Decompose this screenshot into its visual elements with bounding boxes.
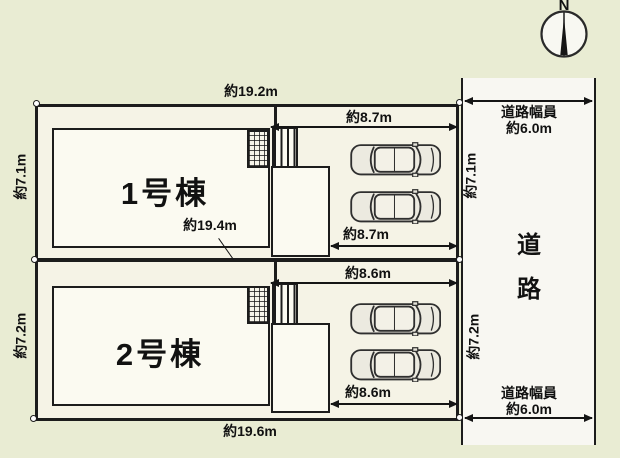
- car-icon: [350, 189, 441, 224]
- dim-label-depth-1-left: 約7.1m: [13, 149, 28, 205]
- arrow-left-icon: [270, 279, 279, 287]
- dim-line-parking-1-top: [271, 126, 457, 128]
- car-icon: [350, 347, 441, 382]
- arrow-right-icon: [449, 400, 458, 408]
- corner-marker: [33, 100, 40, 107]
- arrow-right-icon: [449, 242, 458, 250]
- dim-label-middle-width: 約19.4m: [140, 218, 280, 233]
- dim-label-parking-1-top: 約8.7m: [299, 110, 439, 125]
- dim-label-parking-2-bottom: 約8.6m: [298, 385, 438, 400]
- road-width-caption-line1: 道路幅員: [464, 385, 594, 401]
- road-width-caption-line2: 約6.0m: [464, 120, 594, 136]
- road-width-caption-top: 道路幅員 約6.0m: [464, 104, 594, 136]
- car-icon: [350, 301, 441, 336]
- road-width-caption-line1: 道路幅員: [464, 104, 594, 120]
- dim-label-bottom-width: 約19.6m: [180, 424, 320, 439]
- entrance-stairs-2-icon: [272, 283, 298, 325]
- dim-line-parking-2-bottom: [331, 403, 457, 405]
- corner-marker: [31, 256, 38, 263]
- dim-label-parking-1-bottom: 約8.7m: [296, 227, 436, 242]
- dim-line-road-width-top: [465, 100, 592, 102]
- arrow-right-icon: [449, 279, 458, 287]
- arrow-left-icon: [330, 242, 339, 250]
- site-plan: 1号棟 2号棟 約19.2m 約19.4m 約19.6m 約8.7m 約8.7m…: [0, 0, 620, 458]
- dim-line-parking-2-top: [271, 282, 457, 284]
- corner-marker: [30, 415, 37, 422]
- arrow-left-icon: [270, 123, 279, 131]
- arrow-left-icon: [330, 400, 339, 408]
- entrance-porch-2-icon: [247, 286, 269, 324]
- dim-label-parking-2-top: 約8.6m: [298, 266, 438, 281]
- corner-marker: [456, 256, 463, 263]
- dim-label-depth-2-left: 約7.2m: [13, 308, 28, 364]
- corner-marker: [456, 99, 463, 106]
- corner-marker: [456, 414, 463, 421]
- dim-label-top-width: 約19.2m: [181, 84, 321, 99]
- entrance-approach-1: [271, 166, 330, 257]
- building-2-label: 2号棟: [85, 329, 235, 374]
- car-icon: [350, 142, 441, 177]
- entrance-porch-1-icon: [247, 130, 269, 168]
- entrance-stairs-1-icon: [272, 127, 298, 168]
- compass-north-label: N: [534, 0, 594, 14]
- dim-line-parking-1-bottom: [331, 245, 457, 247]
- road-width-caption-line2: 約6.0m: [464, 401, 594, 417]
- road-width-caption-bottom: 道路幅員 約6.0m: [464, 385, 594, 417]
- building-1-label: 1号棟: [90, 168, 240, 213]
- dim-line-road-width-bottom: [465, 417, 592, 419]
- dim-label-depth-2-right: 約7.2m: [466, 309, 481, 365]
- dim-label-depth-1-right: 約7.1m: [463, 148, 478, 204]
- arrow-right-icon: [449, 123, 458, 131]
- road-label: 道路: [514, 224, 544, 313]
